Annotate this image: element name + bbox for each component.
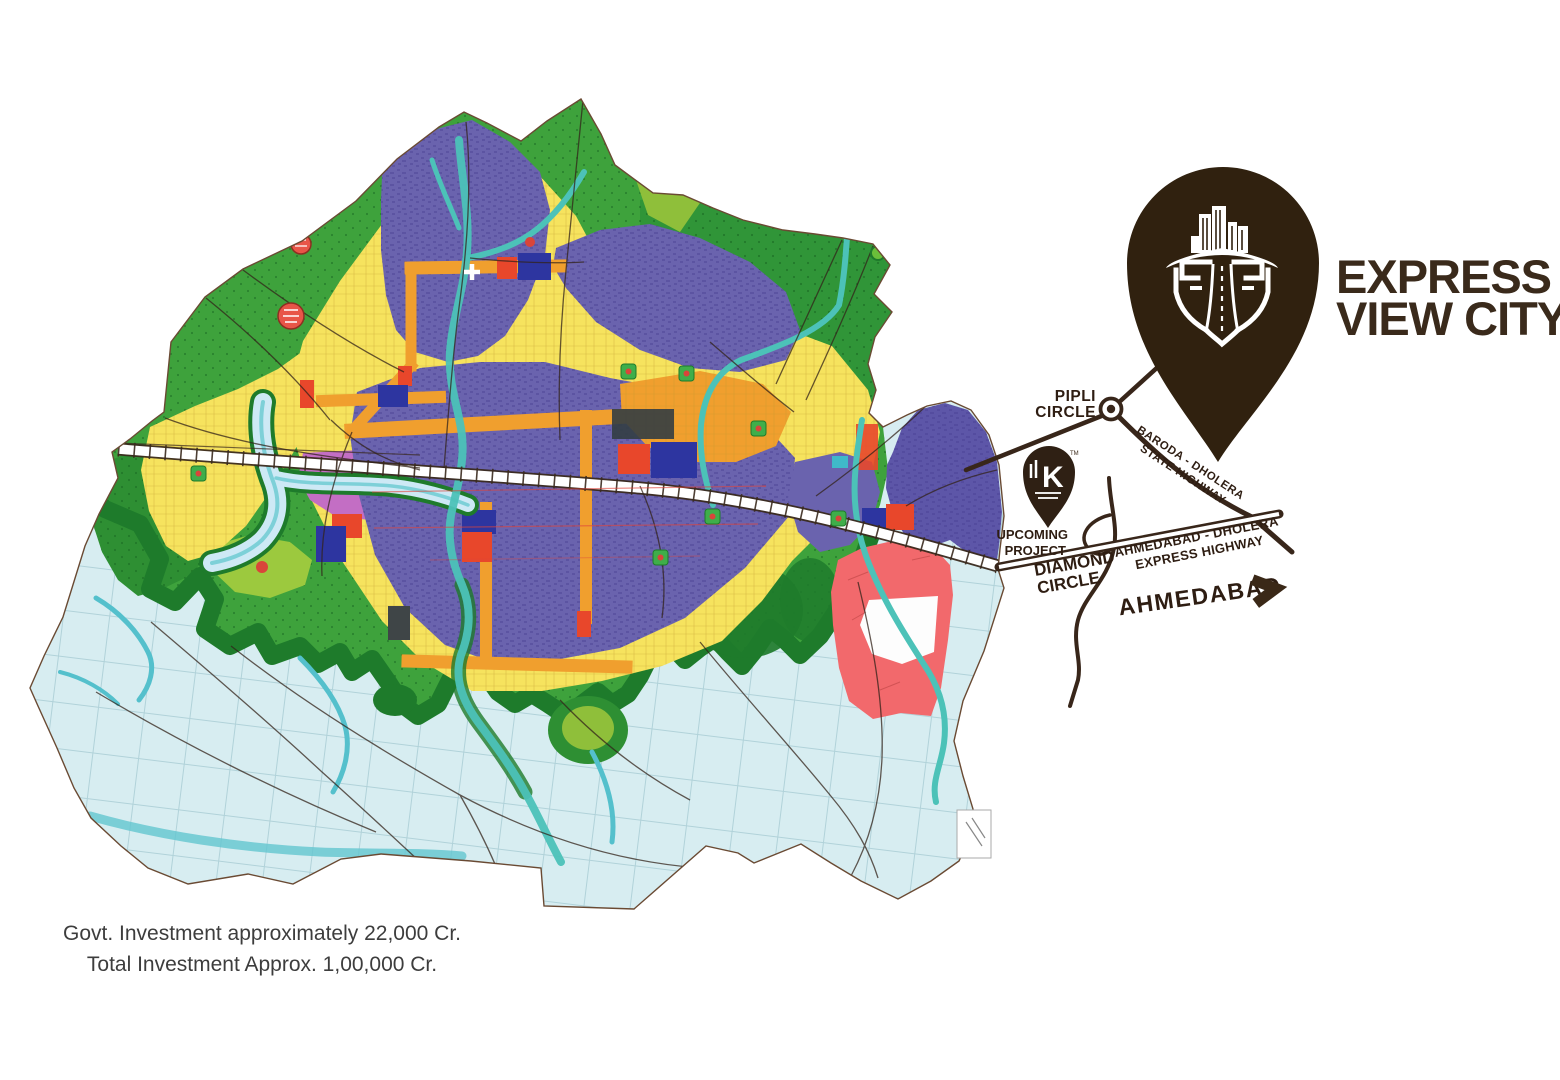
brand-name-line2: VIEW CITY bbox=[1336, 292, 1560, 345]
location-diagram: PIPLI CIRCLE UPCOMING PROJECT DIAMOND CI… bbox=[966, 167, 1560, 706]
investment-note-line1: Govt. Investment approximately 22,000 Cr… bbox=[62, 918, 462, 949]
upcoming-project-label-line1: UPCOMING bbox=[997, 527, 1069, 542]
survey-box bbox=[957, 810, 991, 858]
pipli-circle-node bbox=[1101, 399, 1122, 420]
pipli-circle-label-line2: CIRCLE bbox=[1035, 404, 1096, 421]
upcoming-project-pin: K TM bbox=[1023, 446, 1079, 528]
upcoming-project-label-line2: PROJECT bbox=[1005, 543, 1066, 558]
poster-canvas: PIPLI CIRCLE UPCOMING PROJECT DIAMOND CI… bbox=[0, 0, 1560, 1080]
small-pin-tm: TM bbox=[1070, 451, 1079, 457]
small-pin-letter: K bbox=[1042, 461, 1064, 494]
development-plan-map bbox=[20, 80, 1020, 930]
pipli-circle-label-line1: PIPLI bbox=[1055, 388, 1096, 405]
diamond-circle-road bbox=[1070, 478, 1115, 706]
brand-pin bbox=[1127, 167, 1319, 462]
investment-note-line2: Total Investment Approx. 1,00,000 Cr. bbox=[62, 949, 462, 980]
investment-note: Govt. Investment approximately 22,000 Cr… bbox=[62, 918, 462, 980]
